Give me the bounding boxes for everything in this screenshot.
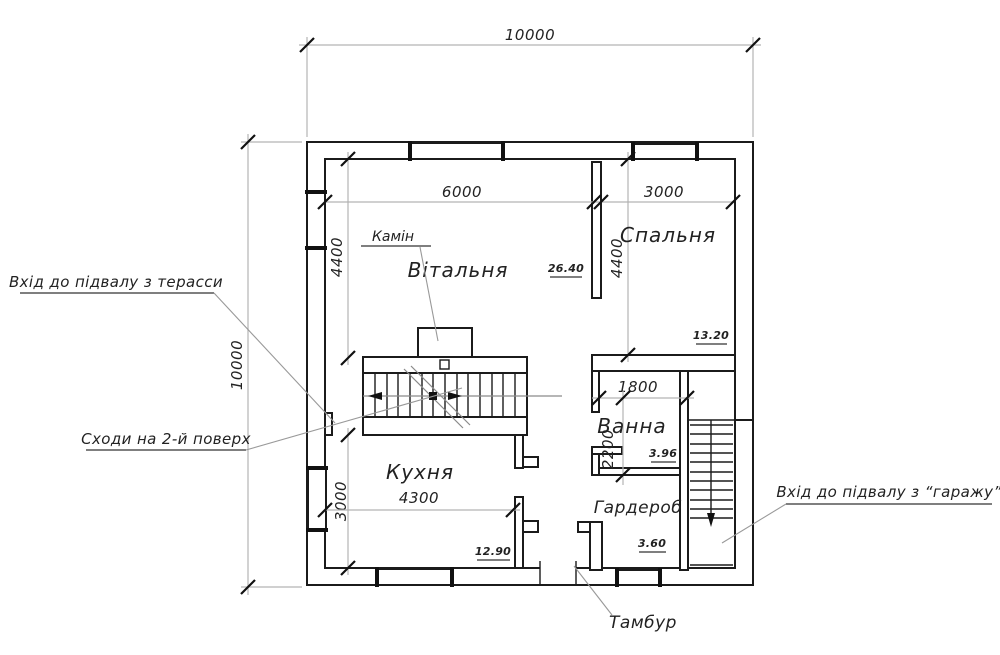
note-stairs-text: Сходи на 2-й поверх	[81, 430, 251, 448]
note-tambur-leader	[574, 566, 612, 615]
main-staircase	[363, 328, 562, 435]
dim-label-living-width: 6000	[442, 183, 482, 201]
area-living: 26.40	[548, 262, 584, 275]
dim-bedroom-depth: 4400	[608, 152, 635, 362]
room-label-tambur: Тамбур	[609, 613, 677, 633]
dim-top-width: 10000	[299, 26, 761, 137]
dim-kitchen-depth: 3000	[332, 428, 355, 575]
note-stairs-second-floor: Сходи на 2-й поверх	[81, 388, 462, 450]
fireplace	[418, 328, 472, 357]
window-bottom-kitchen	[377, 567, 452, 587]
dim-bath-width: 1800	[592, 378, 694, 405]
wall-garderob-step	[578, 522, 590, 532]
note-basement-garage-text: Вхід до підвалу з “гаражу”	[776, 483, 1000, 501]
room-label-bath: Ванна	[597, 414, 666, 438]
entrance-door	[617, 568, 660, 587]
dim-label-bedroom-width: 3000	[644, 183, 684, 201]
window-left-kitchen	[306, 468, 328, 530]
dim-label-kitchen-width: 4300	[399, 489, 439, 507]
wall-garderob-left	[590, 522, 602, 570]
floor-plan-page: 10000 10000 6000 3000 4400	[0, 0, 1000, 655]
room-label-bedroom: Спальня	[620, 223, 716, 247]
area-bedroom: 13.20	[693, 329, 729, 342]
area-bath: 3.96	[649, 447, 677, 460]
wall-bedroom-bottom	[592, 355, 735, 371]
room-label-fireplace: Камін	[372, 229, 414, 245]
dim-label-kitchen-depth: 3000	[332, 481, 350, 521]
leader-annotations: Вхід до підвалу з терасси Сходи на 2-й п…	[9, 273, 1000, 615]
wall-kitchen-right-upper	[515, 435, 523, 468]
area-kitchen: 12.90	[475, 545, 511, 558]
room-label-kitchen: Кухня	[386, 460, 454, 484]
stair-arrow-right	[448, 392, 462, 400]
dim-label-living-depth: 4400	[328, 237, 346, 277]
dim-label-top-width: 10000	[505, 26, 555, 44]
wall-kitchen-jamb-upper	[523, 457, 538, 467]
wall-bath-left-upper	[592, 371, 599, 412]
staircase-column	[440, 360, 449, 369]
partition-living-bedroom	[592, 162, 601, 298]
window-top-bedroom	[633, 142, 697, 161]
note-basement-terrace: Вхід до підвалу з терасси	[9, 273, 335, 423]
window-top-living	[410, 141, 503, 161]
area-garderob: 3.60	[638, 537, 666, 550]
dim-living-depth: 4400	[328, 152, 355, 365]
basement-staircase	[688, 418, 735, 568]
note-stairs-leader	[246, 388, 462, 450]
wall-bath-left-lower	[592, 454, 599, 475]
wall-kitchen-jamb-lower	[523, 521, 538, 532]
floor-plan-drawing: 10000 10000 6000 3000 4400	[0, 0, 1000, 655]
dim-label-bath-width: 1800	[618, 378, 658, 396]
dim-left-height: 10000	[228, 134, 302, 595]
note-basement-terrace-text: Вхід до підвалу з терасси	[9, 273, 223, 291]
window-left-living	[305, 192, 327, 248]
note-basement-garage: Вхід до підвалу з “гаражу”	[722, 483, 1000, 543]
basement-stair-down-arrow	[707, 513, 715, 527]
dim-label-left-height: 10000	[228, 340, 246, 390]
room-label-garderob: Гардероб	[594, 498, 683, 518]
entrance-opening	[540, 560, 576, 582]
dim-room-widths: 6000 3000	[318, 183, 740, 209]
